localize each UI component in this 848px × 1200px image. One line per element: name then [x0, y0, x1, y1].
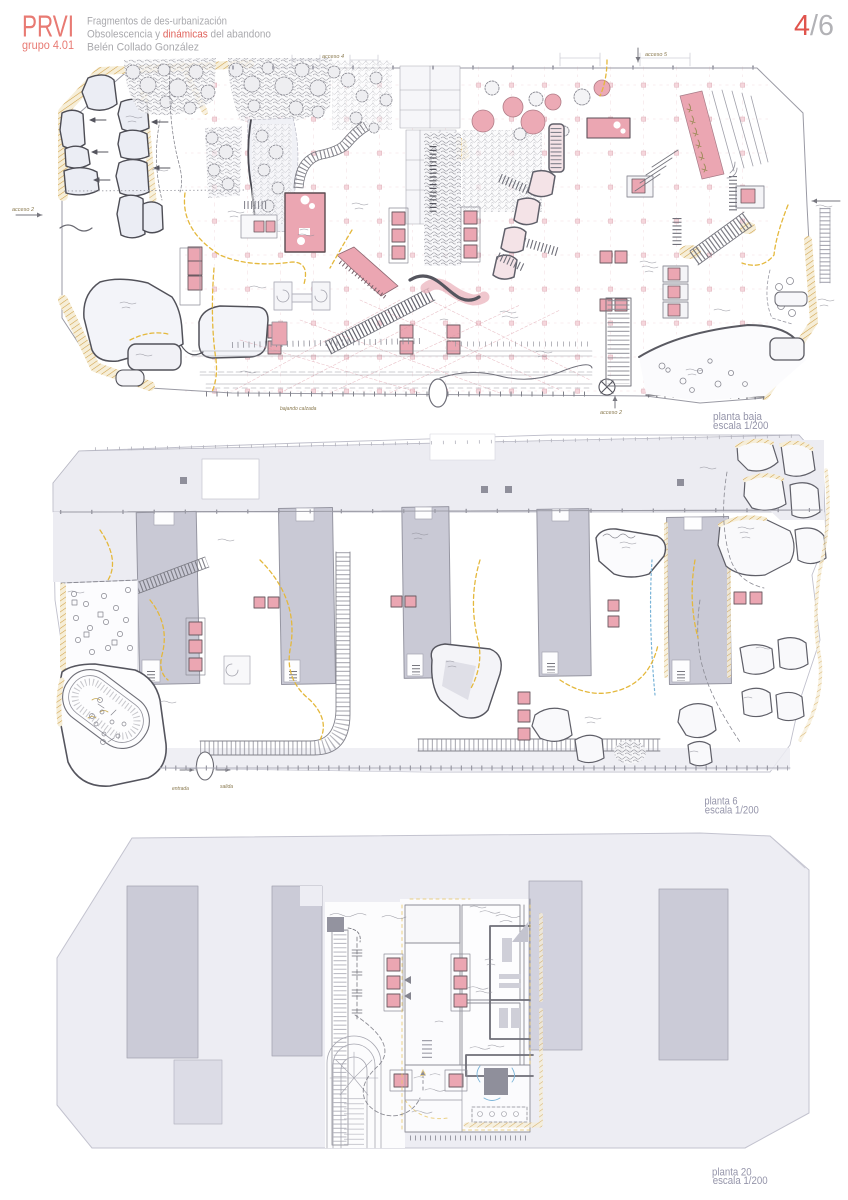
svg-text:escala 1/200: escala 1/200	[713, 420, 769, 432]
svg-text:grupo 4.01: grupo 4.01	[22, 38, 74, 52]
svg-text:Obsolescencia y dinámicas del: Obsolescencia y dinámicas del abandono	[87, 29, 271, 41]
svg-text:Fragmentos de des-urbanización: Fragmentos de des-urbanización	[87, 16, 227, 28]
svg-text:acceso 2: acceso 2	[12, 207, 34, 213]
svg-text:bajando calzada: bajando calzada	[280, 406, 317, 412]
svg-text:salida: salida	[220, 784, 233, 790]
svg-text:acceso 2: acceso 2	[600, 410, 622, 416]
svg-text:escala 1/200: escala 1/200	[713, 1175, 768, 1187]
svg-text:Belén Collado González: Belén Collado González	[87, 42, 199, 54]
svg-text:entrada: entrada	[172, 786, 189, 792]
svg-text:4/6: 4/6	[794, 10, 834, 42]
svg-text:escala 1/200: escala 1/200	[705, 804, 759, 816]
